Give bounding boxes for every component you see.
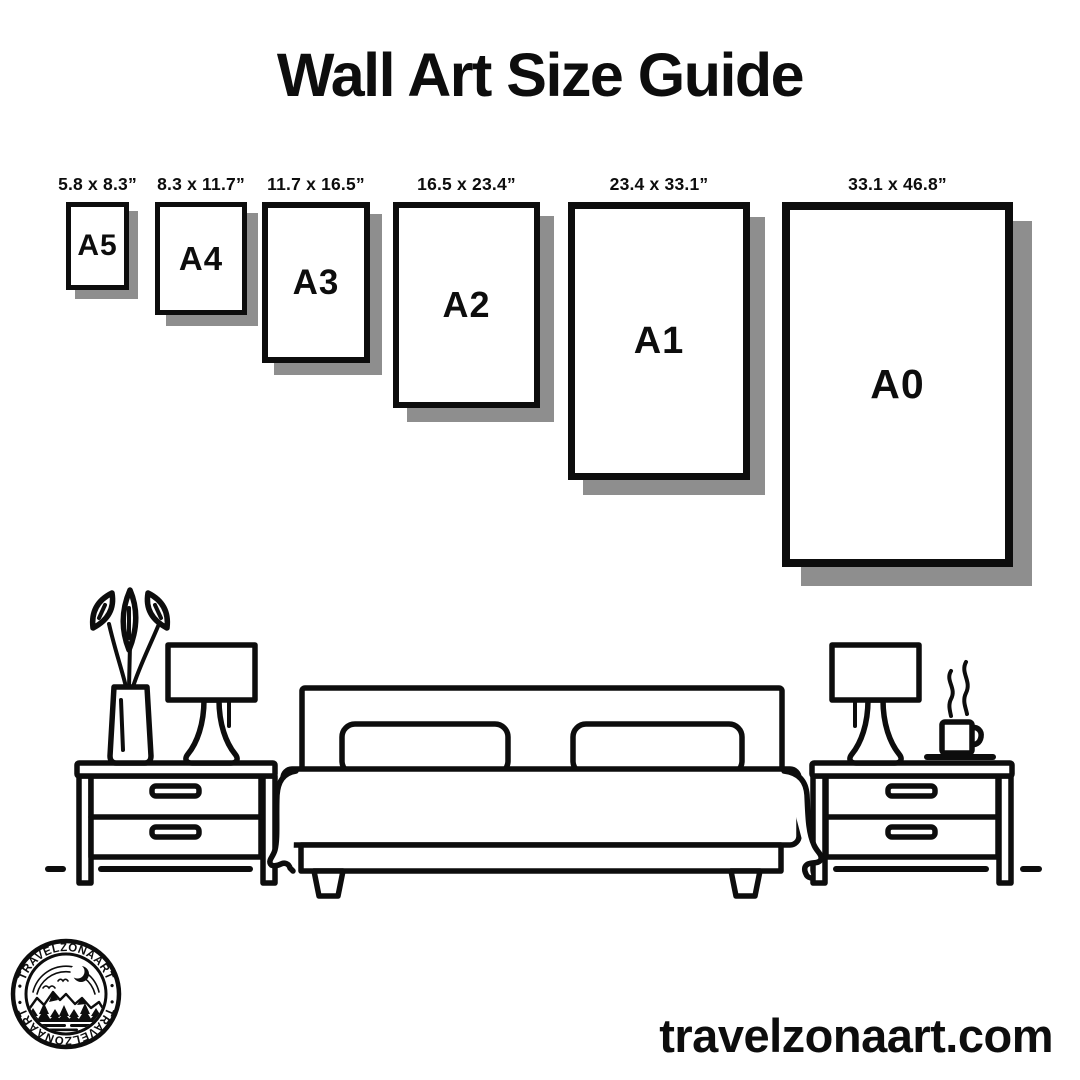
bird-icon [43,986,55,988]
size-guide-infographic: Wall Art Size Guide 5.8 x 8.3” A5 8.3 x … [0,0,1080,1080]
website-url: travelzonaart.com [659,1008,1053,1063]
coffee-cup-illustration [927,662,993,757]
nightstand-right-illustration [812,763,1012,883]
mattress [283,769,799,845]
mountains-icon [27,992,105,1012]
bird-icon [58,979,68,981]
bed-illustration [270,688,821,896]
bed-leg-left [314,871,343,896]
bed-frame [301,845,781,871]
bedroom-illustration [0,0,1080,1080]
nightstand-left-illustration [77,763,275,883]
brand-logo: • TRAVELZONAART • • TRAVELZONAART • [6,932,126,1056]
lamp-left-illustration [168,645,255,763]
vase-illustration [93,590,168,763]
lamp-right-illustration [832,645,919,763]
bed-leg-right [731,871,760,896]
